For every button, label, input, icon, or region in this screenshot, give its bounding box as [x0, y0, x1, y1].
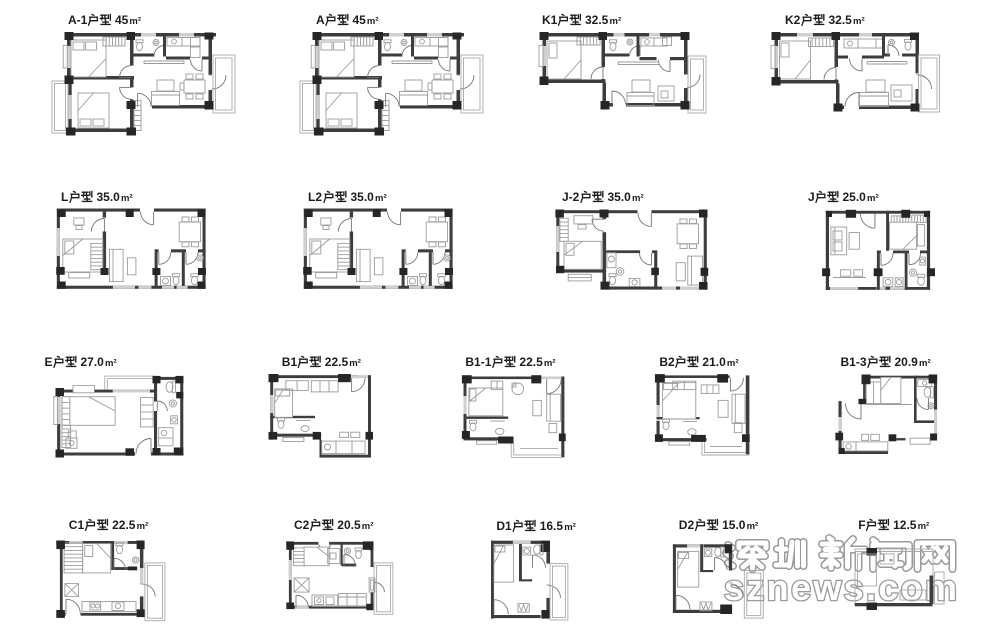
svg-text:J-2: J-2 [562, 190, 580, 204]
svg-text:25.0: 25.0 [843, 190, 867, 204]
svg-text:45: 45 [353, 13, 367, 27]
svg-text:22.5: 22.5 [325, 355, 349, 369]
svg-text:A-1: A-1 [68, 13, 88, 27]
svg-text:D2: D2 [679, 518, 695, 532]
svg-text:F: F [858, 518, 865, 532]
svg-text:15.0: 15.0 [722, 518, 746, 532]
svg-text:m²: m² [105, 358, 117, 369]
svg-text:C2: C2 [294, 518, 310, 532]
svg-text:m²: m² [919, 358, 931, 369]
svg-text:B1: B1 [282, 355, 298, 369]
svg-text:35.0: 35.0 [351, 190, 375, 204]
svg-text:B1-3: B1-3 [841, 355, 867, 369]
svg-text:m²: m² [362, 521, 374, 532]
svg-text:m²: m² [137, 521, 149, 532]
svg-text:J: J [808, 190, 815, 204]
svg-text:L: L [61, 190, 68, 204]
svg-text:m²: m² [867, 193, 879, 204]
svg-text:m²: m² [747, 521, 759, 532]
svg-text:m²: m² [853, 16, 865, 27]
svg-text:35.0: 35.0 [608, 190, 632, 204]
svg-text:m²: m² [918, 521, 930, 532]
svg-text:C1: C1 [69, 518, 85, 532]
svg-text:D1: D1 [496, 519, 512, 533]
svg-text:K2: K2 [785, 13, 801, 27]
svg-text:L2: L2 [308, 190, 322, 204]
svg-text:m²: m² [610, 16, 622, 27]
svg-text:45: 45 [115, 13, 129, 27]
svg-text:m²: m² [367, 16, 379, 27]
svg-text:21.0: 21.0 [702, 355, 726, 369]
svg-text:m²: m² [349, 358, 361, 369]
svg-text:m²: m² [564, 522, 576, 533]
svg-text:16.5: 16.5 [540, 519, 564, 533]
svg-text:27.0: 27.0 [81, 355, 105, 369]
svg-text:m²: m² [632, 193, 644, 204]
svg-text:m²: m² [129, 16, 141, 27]
svg-text:B1-1: B1-1 [465, 355, 491, 369]
svg-text:A: A [316, 13, 325, 27]
svg-text:32.5: 32.5 [585, 13, 609, 27]
svg-text:m²: m² [121, 193, 133, 204]
svg-text:12.5: 12.5 [893, 518, 917, 532]
svg-text:B2: B2 [659, 355, 675, 369]
svg-text:22.5: 22.5 [519, 355, 543, 369]
svg-text:22.5: 22.5 [112, 518, 136, 532]
svg-text:20.5: 20.5 [337, 518, 361, 532]
svg-text:35.0: 35.0 [97, 190, 121, 204]
svg-text:E: E [45, 355, 53, 369]
svg-text:m²: m² [544, 358, 556, 369]
svg-text:20.9: 20.9 [895, 355, 919, 369]
svg-text:m²: m² [375, 193, 387, 204]
svg-text:32.5: 32.5 [829, 13, 853, 27]
svg-text:m²: m² [727, 358, 739, 369]
svg-text:K1: K1 [542, 13, 558, 27]
